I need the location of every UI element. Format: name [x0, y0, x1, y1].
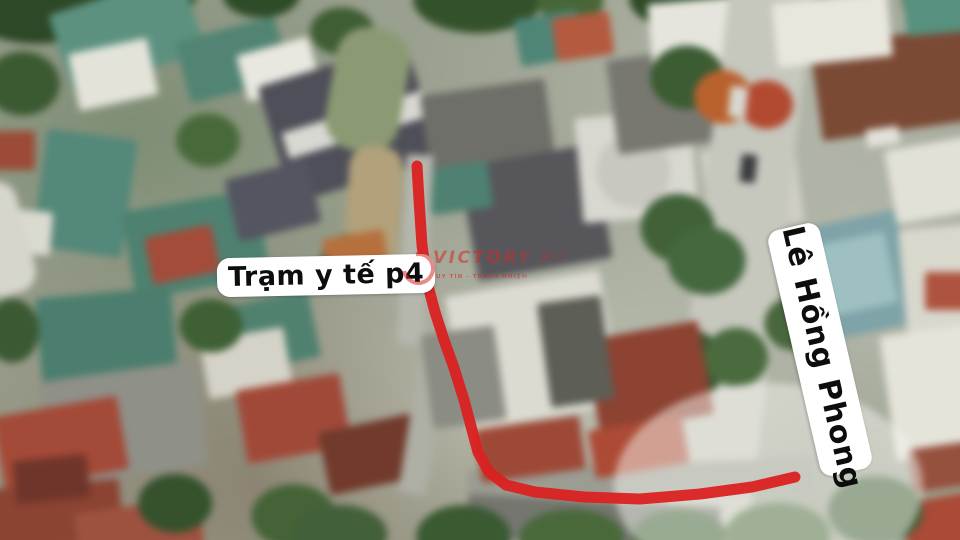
- building-roof: [426, 161, 494, 215]
- tree-blob: [667, 227, 745, 295]
- car: [865, 126, 900, 148]
- car: [739, 154, 757, 183]
- building-roof: [551, 11, 614, 62]
- tree-blob: [0, 52, 60, 116]
- building-roof: [772, 0, 893, 68]
- building-roof: [12, 454, 90, 505]
- building-roof: [420, 325, 507, 429]
- aerial-map-screenshot: Trạm y tế p4 Lê Hồng Phong VICTORY RE UY…: [0, 0, 960, 540]
- building-roof: [884, 135, 960, 224]
- tree-blob: [705, 328, 769, 387]
- tree-blob: [0, 299, 39, 363]
- building-roof: [925, 272, 960, 310]
- watermark-tagline: UY TÍN - TRÁCH NHIỆM: [436, 274, 528, 280]
- building-roof: [902, 0, 960, 36]
- building-roof: [224, 160, 321, 242]
- tree-blob: [179, 299, 243, 353]
- watermark-brand: VICTORY RE: [433, 248, 570, 268]
- car: [728, 86, 749, 119]
- tree-blob: [176, 113, 240, 167]
- tree-blob: [138, 474, 212, 533]
- watermark: VICTORY RE UY TÍN - TRÁCH NHIỆM: [395, 246, 595, 290]
- building-roof: [0, 131, 35, 170]
- tree-blob: [223, 0, 300, 18]
